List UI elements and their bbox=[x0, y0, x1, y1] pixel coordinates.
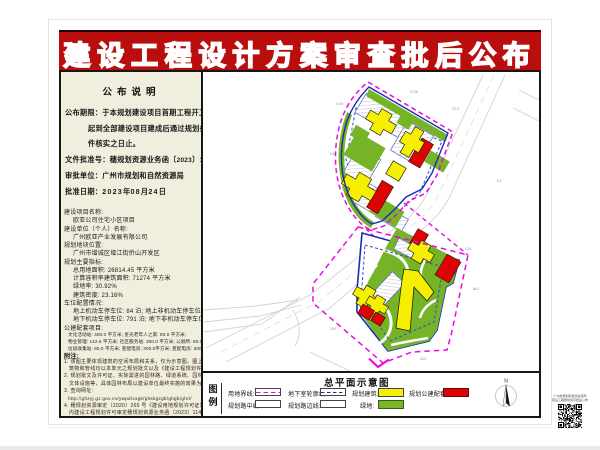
svg-text:12-26: 12-26 bbox=[410, 90, 418, 94]
svg-text:15.0: 15.0 bbox=[330, 327, 336, 331]
svg-text:7.0: 7.0 bbox=[340, 247, 345, 251]
svg-text:24.0: 24.0 bbox=[420, 357, 426, 361]
svg-text:12.5: 12.5 bbox=[465, 247, 471, 251]
svg-text:x=24: x=24 bbox=[336, 102, 343, 106]
svg-text:3.5: 3.5 bbox=[330, 152, 335, 156]
svg-text:dk-2: dk-2 bbox=[473, 287, 479, 291]
svg-text:N: N bbox=[504, 379, 508, 385]
svg-text:8.2: 8.2 bbox=[497, 179, 502, 183]
svg-text:G7-3: G7-3 bbox=[452, 107, 459, 111]
